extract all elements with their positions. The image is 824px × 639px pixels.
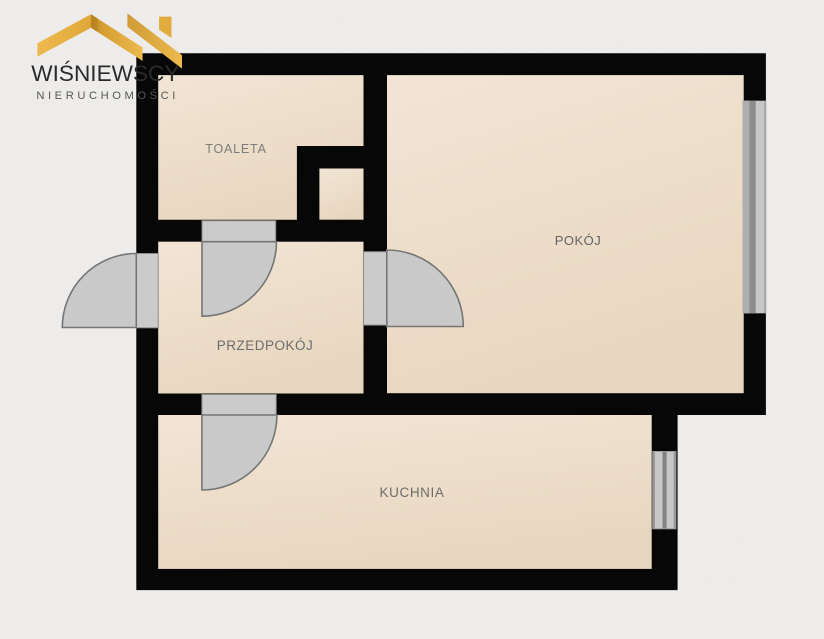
svg-text:TOALETA: TOALETA: [205, 142, 266, 156]
svg-text:NIERUCHOMOŚCI: NIERUCHOMOŚCI: [36, 89, 179, 102]
svg-text:POKÓJ: POKÓJ: [555, 233, 602, 248]
svg-text:PRZEDPOKÓJ: PRZEDPOKÓJ: [217, 338, 314, 353]
svg-text:WIŚNIEWSCY: WIŚNIEWSCY: [31, 61, 179, 86]
svg-text:KUCHNIA: KUCHNIA: [380, 485, 445, 500]
